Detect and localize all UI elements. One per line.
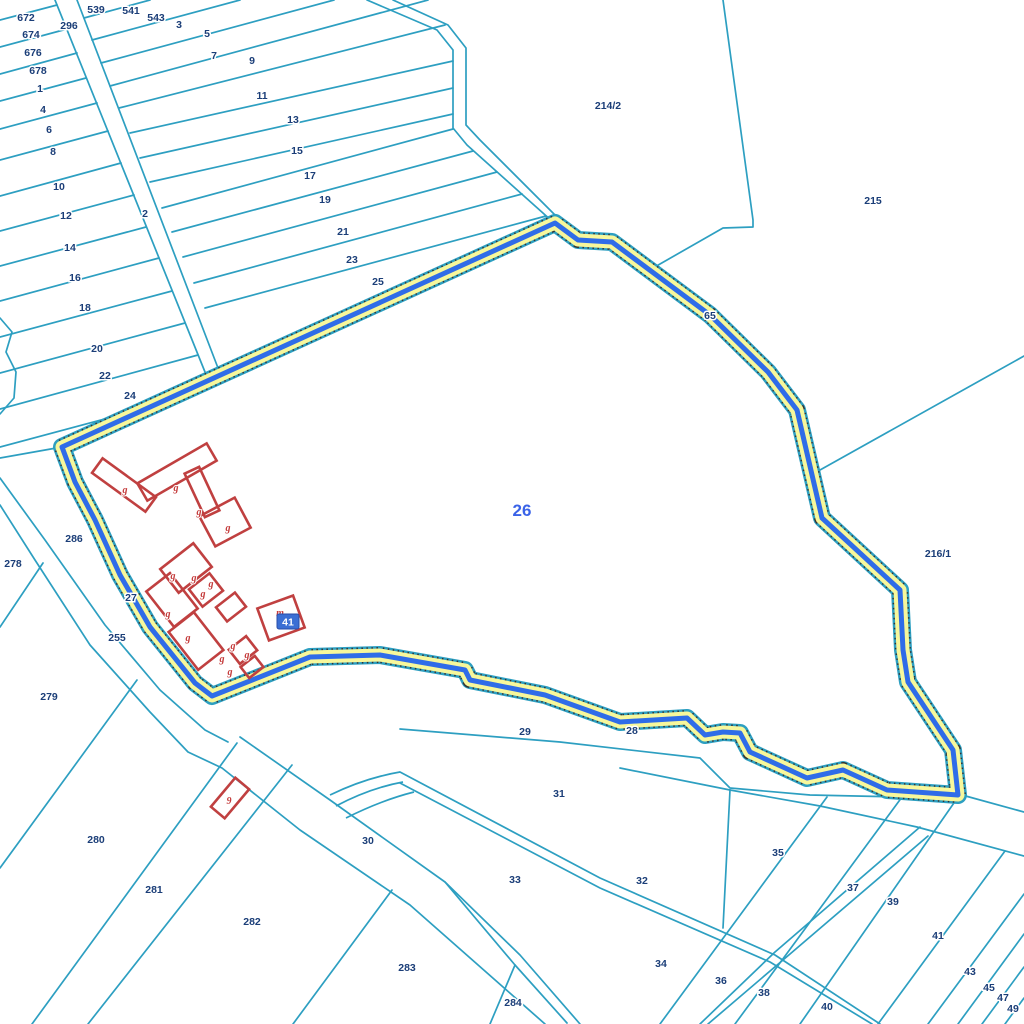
parcel-label-38: 38 (758, 987, 770, 999)
parcel-label-4: 4 (40, 104, 46, 116)
parcel-label-216/1: 216/1 (925, 548, 951, 560)
parcel-label-16: 16 (69, 272, 81, 284)
parcel-label-12: 12 (60, 210, 72, 222)
parcel-label-284: 284 (504, 997, 522, 1009)
parcel-label-30: 30 (362, 835, 374, 847)
building-label: g (200, 589, 206, 600)
parcel-label-23: 23 (346, 254, 358, 266)
building-label: g (244, 650, 250, 661)
parcel-label-15: 15 (291, 145, 303, 157)
parcel-label-43: 43 (964, 966, 976, 978)
cadastral-map: ggggggggggggggm9539541543357911131517192… (0, 0, 1024, 1024)
parcel-label-7: 7 (211, 50, 217, 62)
building-label: g (227, 667, 233, 678)
building-label: g (191, 573, 197, 584)
building-label: g (170, 571, 176, 582)
parcel-label-13: 13 (287, 114, 299, 126)
building-label: g (225, 523, 231, 534)
parcel-label-45: 45 (983, 982, 995, 994)
building-label: g (196, 507, 202, 518)
building-label: g (230, 641, 236, 652)
parcel-label-541: 541 (122, 5, 140, 17)
parcel-label-32: 32 (636, 875, 648, 887)
building-41-badge-label: 41 (282, 617, 294, 629)
parcel-label-214/2: 214/2 (595, 100, 621, 112)
parcel-label-676: 676 (24, 47, 42, 59)
parcel-label-278: 278 (4, 558, 22, 570)
parcel-label-296: 296 (60, 20, 78, 32)
parcel-label-20: 20 (91, 343, 103, 355)
parcel-label-8: 8 (50, 146, 56, 158)
building-label: g (165, 609, 171, 620)
parcel-label-41: 41 (932, 930, 944, 942)
parcel-label-5: 5 (204, 28, 210, 40)
parcel-label-11: 11 (256, 90, 267, 102)
selected-parcel-label[interactable]: 26 (513, 501, 532, 520)
building-label: g (208, 579, 214, 590)
parcel-label-286: 286 (65, 533, 83, 545)
parcel-label-3: 3 (176, 19, 182, 31)
parcel-label-9: 9 (249, 55, 255, 67)
parcel-label-24: 24 (124, 390, 136, 402)
parcel-label-543: 543 (147, 12, 165, 24)
parcel-label-280: 280 (87, 834, 105, 846)
parcel-label-283: 283 (398, 962, 416, 974)
parcel-label-10: 10 (53, 181, 65, 193)
parcel-label-22: 22 (99, 370, 111, 382)
parcel-label-674: 674 (22, 29, 40, 41)
parcel-label-215: 215 (864, 195, 882, 207)
parcel-label-40: 40 (821, 1001, 833, 1013)
parcel-label-255: 255 (108, 632, 126, 644)
parcel-label-34: 34 (655, 958, 667, 970)
parcel-label-672: 672 (17, 12, 35, 24)
parcel-label-6: 6 (46, 124, 52, 136)
parcel-label-282: 282 (243, 916, 261, 928)
parcel-label-279: 279 (40, 691, 58, 703)
parcel-label-28: 28 (626, 725, 638, 737)
parcel-label-65: 65 (704, 310, 716, 322)
parcel-label-678: 678 (29, 65, 47, 77)
parcel-label-25: 25 (372, 276, 384, 288)
parcel-label-27: 27 (125, 592, 137, 604)
parcel-label-21: 21 (337, 226, 349, 238)
parcel-label-14: 14 (64, 242, 76, 254)
parcel-label-17: 17 (304, 170, 316, 182)
parcel-label-18: 18 (79, 302, 91, 314)
parcel-label-539: 539 (87, 4, 105, 16)
parcel-label-49: 49 (1007, 1003, 1019, 1015)
building-label: g (173, 483, 179, 494)
parcel-label-2: 2 (142, 208, 148, 220)
parcel-label-36: 36 (715, 975, 727, 987)
parcel-label-1: 1 (37, 83, 43, 95)
parcel-label-29: 29 (519, 726, 531, 738)
parcel-label-37: 37 (847, 882, 859, 894)
building-label: g (185, 633, 191, 644)
parcel-label-35: 35 (772, 847, 784, 859)
building-label: g (122, 485, 128, 496)
parcel-label-31: 31 (553, 788, 565, 800)
parcel-label-19: 19 (319, 194, 331, 206)
parcel-label-281: 281 (145, 884, 163, 896)
parcel-label-39: 39 (887, 896, 899, 908)
parcel-label-33: 33 (509, 874, 521, 886)
building-label: 9 (227, 796, 232, 807)
building-label: g (219, 654, 225, 665)
